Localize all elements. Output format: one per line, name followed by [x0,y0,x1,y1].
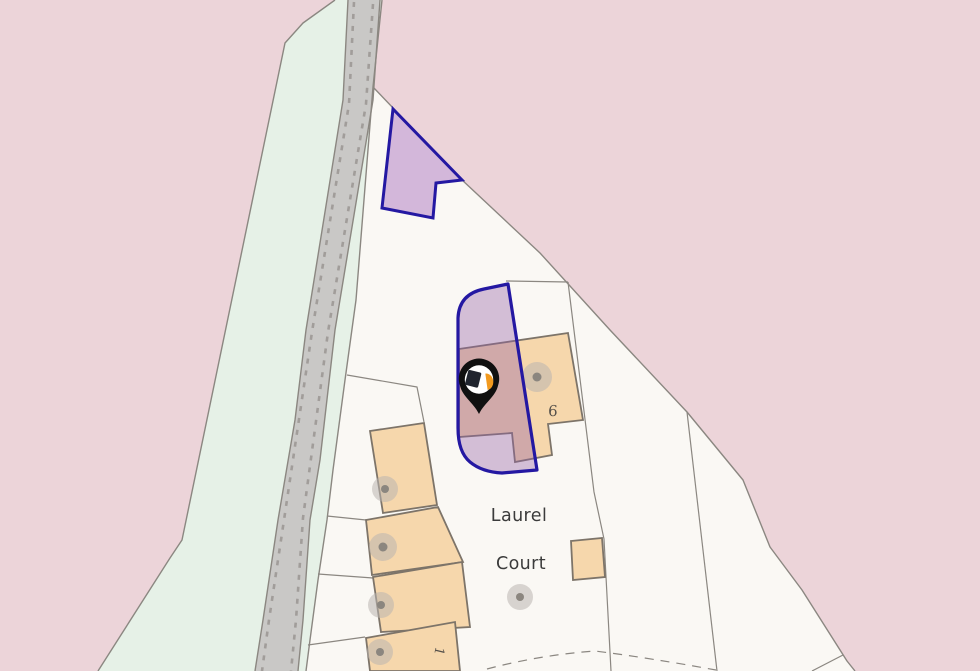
tree-symbol [522,362,552,392]
tree-symbol [507,584,533,610]
map-canvas[interactable]: Laurel Court 6 1 [0,0,980,671]
tree-symbol [367,639,393,665]
house-number-label-6: 6 [548,402,558,420]
tree-symbol [369,533,397,561]
tree-symbol [368,592,394,618]
street-name-label-line1: Laurel [491,506,547,526]
building-small [571,538,605,580]
street-name-label-line2: Court [496,554,546,574]
tree-symbol [372,476,398,502]
